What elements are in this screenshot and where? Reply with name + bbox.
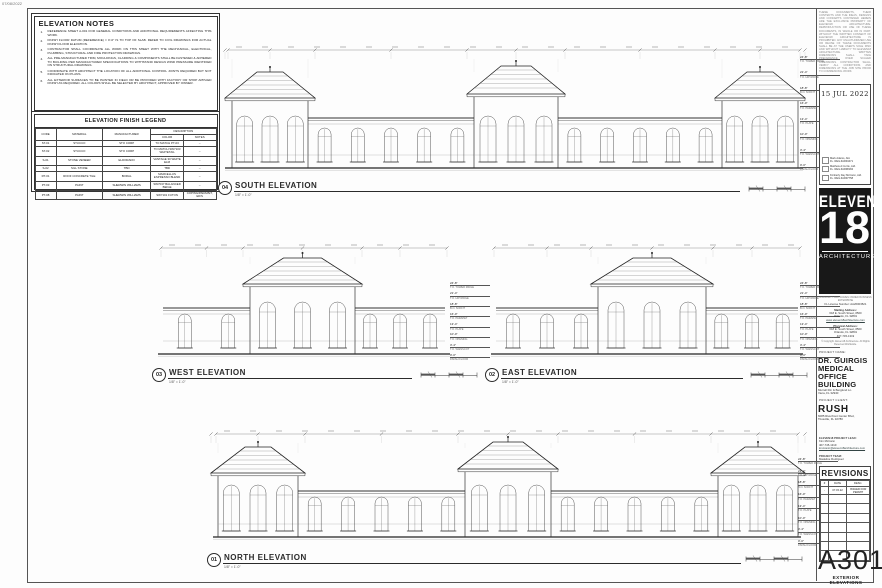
note-item: 5.COORDINATE WITH ARCHITECT THE LOCATION…: [41, 70, 212, 77]
north-elevation-drawing: [210, 425, 805, 549]
north-elevation-title: 01 NORTH ELEVATION 1/8" = 1'-0": [207, 551, 741, 569]
level-tag: 3'-4"T.O. WAINSCOT: [450, 344, 490, 351]
notes-list: 1.REFERENCE SHEET A-001 FOR GENERAL COND…: [35, 30, 217, 86]
west-elevation-title: 03 WEST ELEVATION 1/8" = 1'-0": [152, 366, 412, 384]
level-tag: 0'-0"FINISH FLOOR: [450, 354, 490, 361]
finish-legend-panel: ELEVATION FINISH LEGEND CODEMATERIALMANU…: [31, 111, 220, 192]
east-elevation-drawing: [488, 238, 806, 364]
seal-checkbox: [822, 157, 829, 164]
level-tag: 13'-4"T.O. PLATE: [450, 323, 490, 330]
architect-entry: Matthew A Currie, AIAFL. REG.#AR98184: [822, 165, 868, 172]
firm-info: A MINORITY AND WOMEN OWNED BUSINESS ENTE…: [818, 297, 873, 346]
copyright-text: THESE DOCUMENTS, THEIR CONTENTS AND THE …: [819, 11, 871, 73]
legend-row: S-01STONE VENEERELDORADOVANTAGE 30 WHITE…: [35, 156, 216, 165]
drawing-number-badge: 01: [207, 553, 221, 567]
print-date: 07/08/2022: [2, 1, 22, 6]
project-team-block: PROJECT TEAM: Madeline Rodriguez: [819, 455, 872, 462]
firm-license: FL License Number: AA26003521: [818, 303, 873, 306]
client-address: 6085 Riverfront Center Blvd, Titusville,…: [818, 415, 873, 422]
revisions-title: REVISIONS: [820, 467, 870, 480]
elevation-scale: 1/8" = 1'-0": [235, 193, 740, 197]
architect-entry: Kimberly Day McCann, AIAFL. REG.#AR97758: [822, 174, 868, 181]
stamp-date: 15 JUL 2022: [820, 90, 870, 98]
elevation-name: SOUTH ELEVATION: [234, 179, 317, 191]
drawing-number-badge: 03: [152, 368, 166, 382]
firm-logo: ELEVEN 18 ARCHITECTURE: [819, 188, 871, 294]
project-address: Murrell Rd. & Berglund Ln. Viera, FL 329…: [818, 389, 873, 396]
logo-18-text: 18: [819, 208, 871, 248]
client-address-line2: Titusville, FL 32780: [818, 418, 873, 421]
level-tag: 16'-0"T.O. PARAPET: [450, 313, 490, 320]
project-name: DR. GUIRGIS MEDICAL OFFICE BUILDING: [818, 357, 873, 389]
legend-row: RT-01ROOF CONCRETE TILEBORALMARCELLUS ES…: [35, 172, 216, 181]
level-tag: 24'-8"T.O. TOWER RIDGE: [450, 282, 490, 289]
graphic-scale-icon: [748, 184, 806, 193]
architect-entry: Mark Adams, AIAFL. REG.#AR94471: [822, 157, 868, 164]
level-tag: 18'-8"B.O. SOFFIT: [450, 303, 490, 310]
architects-list: Mark Adams, AIAFL. REG.#AR94471Matthew A…: [822, 155, 868, 181]
revision-row: -07.15.22ISSUED FOR PERMIT: [821, 487, 870, 495]
project-name-label: PROJECT NAME:: [819, 350, 846, 354]
west-elevation-drawing: [155, 238, 453, 364]
drawing-number-badge: 04: [218, 181, 232, 195]
client-label: PROJECT CLIENT:: [819, 398, 848, 402]
elevation-scale: 1/8" = 1'-0": [224, 565, 741, 569]
elevation-name: NORTH ELEVATION: [223, 551, 307, 563]
notes-title: ELEVATION NOTES: [39, 19, 217, 28]
team-name: Madeline Rodriguez: [819, 458, 872, 461]
note-item: 1.REFERENCE SHEET A-001 FOR GENERAL COND…: [41, 30, 212, 37]
elevation-name: EAST ELEVATION: [501, 366, 577, 378]
graphic-scale-icon: [420, 370, 478, 379]
stamp-box: 15 JUL 2022 Mark Adams, AIAFL. REG.#AR94…: [819, 84, 871, 185]
firm-copyright: © Copyright. Eleven18 Architecture. All …: [818, 341, 873, 347]
south-elevation-drawing: [222, 38, 808, 180]
drawing-number-badge: 02: [485, 368, 499, 382]
lead-email: kmccann@eleven18architecture.com: [819, 447, 872, 450]
elevation-name: WEST ELEVATION: [168, 366, 246, 378]
legend-row: ST-02STUCCOSTO CORPTO MATCH SW7103 WHITE…: [35, 147, 216, 156]
level-tag: 10'-0"T.O. OPENING: [450, 333, 490, 340]
level-tag: 21'-4"T.O. HIP RIDGE: [450, 292, 490, 299]
south-elevation-title: 04 SOUTH ELEVATION 1/8" = 1'-0": [218, 179, 740, 197]
elevation-notes-panel: ELEVATION NOTES 1.REFERENCE SHEET A-001 …: [31, 13, 220, 113]
legend-row: PT-08PAINTSHERWIN WILLIAMSSW7101 FUTONCO…: [35, 190, 216, 199]
project-lead-block: ELEVEN18 PROJECT LEAD: Kim McCann 407-74…: [819, 437, 872, 450]
east-elevation-title: 02 EAST ELEVATION 1/8" = 1'-0": [485, 366, 743, 384]
sheet-number: A301: [818, 545, 874, 576]
level-tags-west: 24'-8"T.O. TOWER RIDGE21'-4"T.O. HIP RID…: [450, 282, 490, 362]
legend-table: CODEMATERIALMANUFACTURERDESCRIPTIONCOLOR…: [35, 128, 217, 201]
legend-title: ELEVATION FINISH LEGEND: [35, 115, 217, 128]
graphic-scale-icon: [750, 370, 808, 379]
seal-checkbox: [822, 166, 829, 173]
note-item: 4.ALL PRE-MANUFACTURED TRIM, MOULDINGS, …: [41, 57, 212, 68]
project-address-line2: Viera, FL 32940: [818, 392, 873, 395]
graphic-scale-icon: [745, 554, 803, 563]
note-item: 3.CONTRACTOR SHALL COORDINATE ALL WORK O…: [41, 48, 212, 55]
logo-architecture-text: ARCHITECTURE: [819, 254, 871, 260]
logo-eleven-text: ELEVEN: [819, 193, 871, 209]
firm-website: www.eleven18architecture.com: [818, 319, 873, 322]
elevation-scale: 1/8" = 1'-0": [169, 380, 412, 384]
seal-checkbox: [822, 175, 829, 182]
note-item: 2.FINISH FLOOR DATUM (REFERENCE) = 0'-0"…: [41, 39, 212, 46]
note-item: 6.ALL EXTERIOR SURFACES TO BE PAINTED IN…: [41, 79, 212, 86]
sheet-title: EXTERIOR ELEVATIONS: [816, 575, 876, 585]
elevation-scale: 1/8" = 1'-0": [502, 380, 743, 384]
legend-row: PT-03PAINTSHERWIN WILLIAMSSW7037 BALANCE…: [35, 181, 216, 190]
